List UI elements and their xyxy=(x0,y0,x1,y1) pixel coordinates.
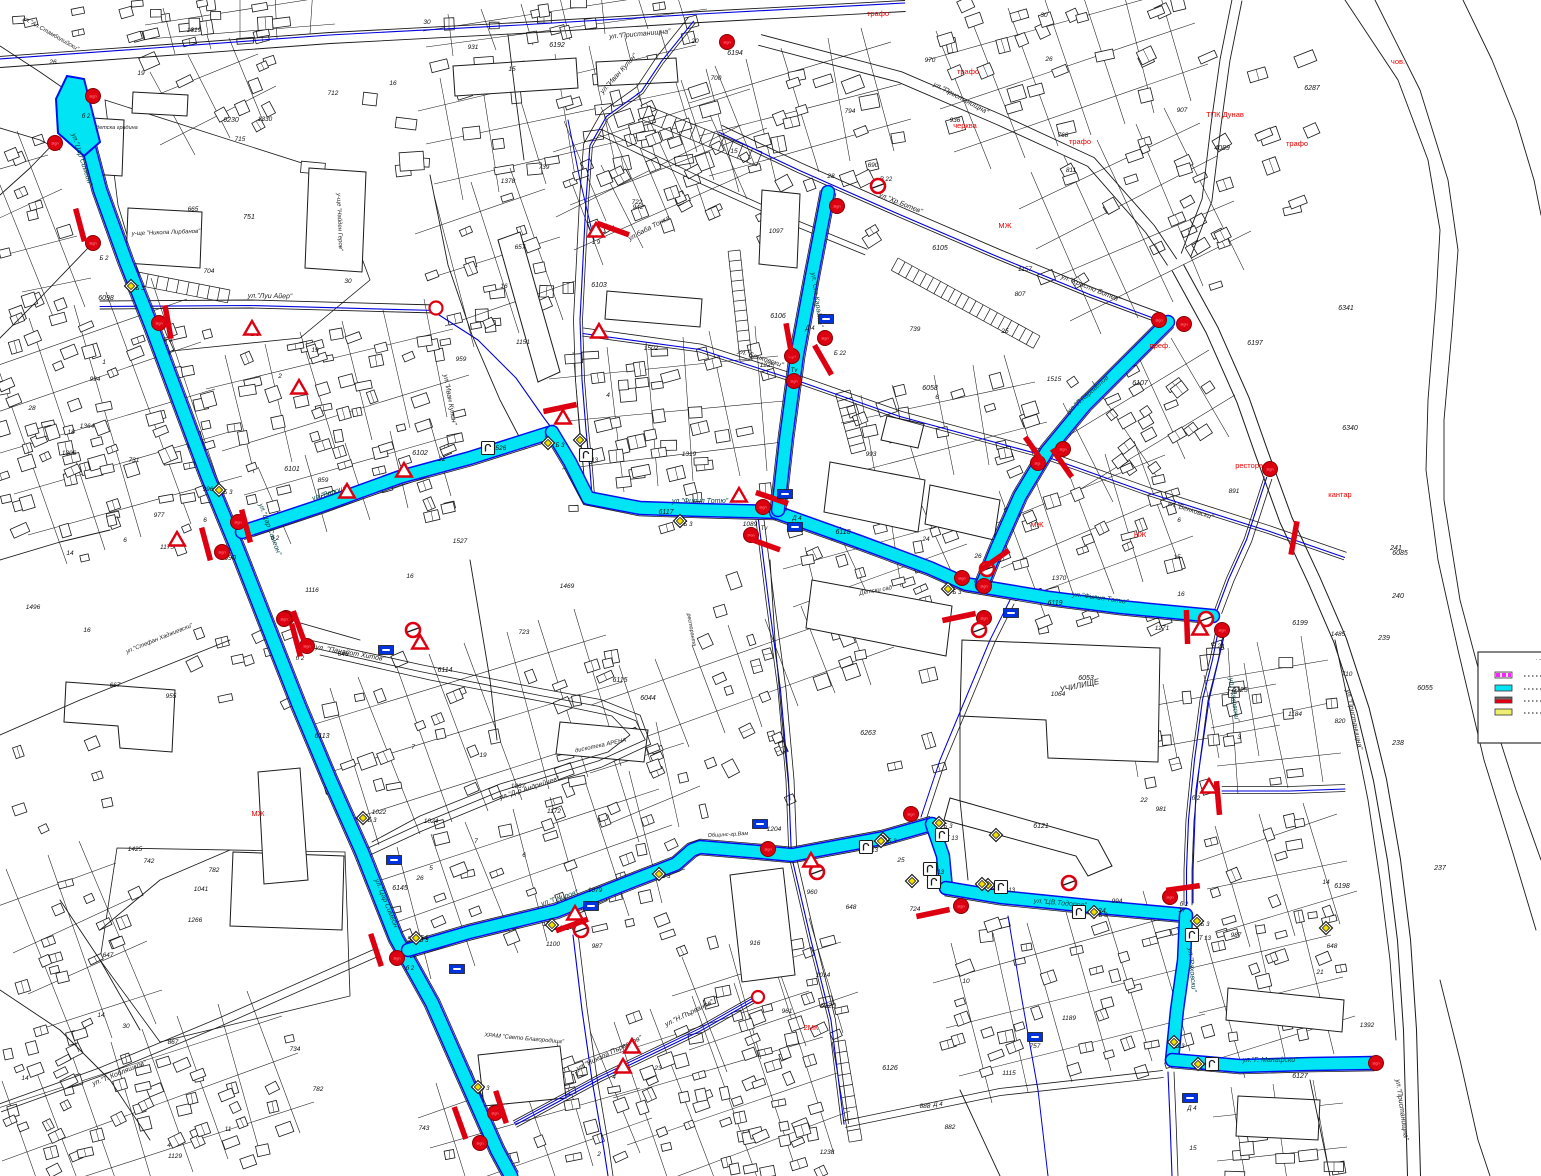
svg-text:648: 648 xyxy=(1327,943,1338,950)
svg-text:6: 6 xyxy=(935,394,939,401)
svg-text:6118: 6118 xyxy=(835,529,850,536)
svg-text:ул.”Луи Айер”: ул.”Луи Айер” xyxy=(247,292,293,301)
svg-text:751: 751 xyxy=(243,214,255,221)
svg-text:6119: 6119 xyxy=(1047,600,1062,607)
svg-text:648: 648 xyxy=(846,904,857,911)
svg-text:Д 4: Д 4 xyxy=(1186,1106,1197,1112)
svg-text:16: 16 xyxy=(500,283,508,290)
svg-text:891: 891 xyxy=(1229,488,1240,495)
svg-text:sign: sign xyxy=(1180,322,1187,327)
svg-text:820: 820 xyxy=(1335,718,1346,725)
svg-text:sign: sign xyxy=(821,336,828,341)
svg-text:723: 723 xyxy=(519,629,530,636)
svg-text:7: 7 xyxy=(474,838,478,845)
svg-text:Б 3: Б 3 xyxy=(556,443,566,449)
svg-text:1392: 1392 xyxy=(1360,1022,1375,1029)
svg-text:кантар: кантар xyxy=(1328,490,1351,499)
svg-text:768: 768 xyxy=(1058,132,1069,139)
svg-text:15: 15 xyxy=(508,66,516,73)
svg-text:sign: sign xyxy=(980,616,987,621)
svg-text:888: 888 xyxy=(920,1103,931,1110)
svg-text:647: 647 xyxy=(103,952,114,959)
svg-text:15: 15 xyxy=(1189,1145,1197,1152)
svg-text:6198: 6198 xyxy=(1334,883,1350,890)
svg-text:трафо: трафо xyxy=(1286,139,1308,148)
svg-text:6197: 6197 xyxy=(1247,340,1264,347)
svg-text:739: 739 xyxy=(539,164,550,171)
svg-text:6044: 6044 xyxy=(640,695,656,702)
svg-text:6126: 6126 xyxy=(882,1065,898,1072)
svg-text:724: 724 xyxy=(910,906,921,913)
svg-text:sign: sign xyxy=(155,321,162,326)
svg-text:6145: 6145 xyxy=(392,885,408,892)
svg-text:МЖ: МЖ xyxy=(1030,520,1043,529)
svg-text:1225: 1225 xyxy=(760,362,775,369)
svg-text:Б 2: Б 2 xyxy=(100,256,110,262)
svg-text:1116: 1116 xyxy=(305,587,319,594)
svg-text:б 2: б 2 xyxy=(271,536,280,542)
svg-text:1370: 1370 xyxy=(1052,575,1067,582)
svg-text:sign: sign xyxy=(1372,1061,1379,1066)
svg-text:sign: sign xyxy=(89,241,96,246)
svg-text:239: 239 xyxy=(1377,635,1390,642)
svg-text:20: 20 xyxy=(690,38,699,45)
svg-text:6: 6 xyxy=(1177,517,1181,524)
svg-text:1129: 1129 xyxy=(168,1153,182,1160)
svg-text:преф.: преф. xyxy=(1150,341,1171,350)
svg-text:1189: 1189 xyxy=(1062,1015,1076,1022)
svg-text:трафо: трафо xyxy=(957,67,979,76)
svg-text:детска градина: детска градина xyxy=(96,125,138,131)
svg-text:3: 3 xyxy=(1237,734,1241,741)
svg-text:994: 994 xyxy=(90,376,101,383)
svg-text:4: 4 xyxy=(606,392,610,399)
svg-text:1041: 1041 xyxy=(194,886,209,893)
svg-text:704: 704 xyxy=(204,268,215,275)
svg-text:6102: 6102 xyxy=(412,450,428,457)
svg-text:sign: sign xyxy=(218,550,225,555)
svg-text:черква: черква xyxy=(953,121,977,130)
svg-text:sign: sign xyxy=(1166,895,1173,900)
svg-text:Б 22: Б 22 xyxy=(834,351,847,357)
svg-text:1 9: 1 9 xyxy=(592,240,601,246)
svg-text:sign: sign xyxy=(764,847,771,852)
svg-text:6115: 6115 xyxy=(612,677,627,684)
svg-text:1204: 1204 xyxy=(767,826,782,833)
svg-text:867: 867 xyxy=(168,1039,179,1046)
svg-text:742: 742 xyxy=(144,858,155,865)
svg-text:1089: 1089 xyxy=(743,521,758,528)
svg-text:Б 3: Б 3 xyxy=(953,590,963,596)
svg-text:sign: sign xyxy=(1266,467,1273,472)
svg-text:sign: sign xyxy=(958,576,965,581)
svg-text:19: 19 xyxy=(137,70,145,77)
svg-text:5: 5 xyxy=(429,865,433,872)
svg-text:15: 15 xyxy=(1173,554,1181,561)
svg-text:240: 240 xyxy=(1391,593,1404,600)
svg-text:30: 30 xyxy=(344,278,352,285)
svg-text:712: 712 xyxy=(328,90,339,97)
svg-text:6127: 6127 xyxy=(1292,1073,1309,1080)
svg-text:1097: 1097 xyxy=(769,228,784,235)
svg-text:710: 710 xyxy=(1342,671,1353,678)
svg-text:26: 26 xyxy=(973,553,982,560)
svg-text:14: 14 xyxy=(21,1075,29,1082)
svg-text:16: 16 xyxy=(1177,591,1185,598)
svg-text:28: 28 xyxy=(826,173,835,180)
svg-text:1330: 1330 xyxy=(258,116,273,123)
svg-text:1067: 1067 xyxy=(511,783,526,790)
svg-text:НЖ: НЖ xyxy=(1134,530,1146,539)
svg-text:sign: sign xyxy=(476,1141,483,1146)
svg-text:1364: 1364 xyxy=(80,423,95,430)
svg-text:16: 16 xyxy=(389,80,397,87)
svg-text:782: 782 xyxy=(209,867,220,874)
svg-text:743: 743 xyxy=(419,1125,430,1132)
svg-text:981: 981 xyxy=(1156,806,1167,813)
svg-text:б 2: б 2 xyxy=(1180,902,1189,908)
svg-text:715: 715 xyxy=(235,136,246,143)
svg-text:6105: 6105 xyxy=(932,245,948,252)
svg-text:б 2: б 2 xyxy=(1192,796,1201,802)
svg-text:sign: sign xyxy=(1218,628,1225,633)
svg-text:. ..: . .. xyxy=(1536,656,1541,662)
svg-text:чов.: чов. xyxy=(1391,57,1405,66)
svg-text:757: 757 xyxy=(1030,1043,1041,1050)
svg-text:10: 10 xyxy=(962,978,970,985)
svg-text:6: 6 xyxy=(522,852,526,859)
svg-text:6058: 6058 xyxy=(922,385,938,392)
svg-text:6263: 6263 xyxy=(860,730,876,737)
svg-text:sign: sign xyxy=(907,812,914,817)
svg-text:1469: 1469 xyxy=(560,583,575,590)
svg-text:959: 959 xyxy=(456,356,467,363)
svg-text:811: 811 xyxy=(1066,167,1077,174)
svg-text:Д 4: Д 4 xyxy=(804,326,815,332)
svg-text:1: 1 xyxy=(102,359,106,366)
svg-text:25: 25 xyxy=(896,857,905,864)
svg-text:722: 722 xyxy=(632,199,643,206)
svg-text:1378: 1378 xyxy=(501,178,516,185)
svg-text:ул.”Г. Манафски”: ул.”Г. Манафски” xyxy=(1241,1057,1298,1064)
svg-text:1172: 1172 xyxy=(547,808,561,815)
svg-text:6055: 6055 xyxy=(1417,685,1433,692)
svg-text:1157: 1157 xyxy=(1018,266,1032,273)
svg-text:Д 4: Д 4 xyxy=(932,1102,943,1108)
svg-text:23: 23 xyxy=(653,1065,662,1072)
svg-text:1184: 1184 xyxy=(1288,711,1302,718)
svg-text:1496: 1496 xyxy=(26,604,41,611)
svg-text:6199: 6199 xyxy=(1292,620,1308,627)
svg-text:30: 30 xyxy=(423,19,431,26)
svg-text:716: 716 xyxy=(1227,689,1238,696)
svg-text:30: 30 xyxy=(1040,12,1048,19)
svg-text:782: 782 xyxy=(313,1086,324,1093)
svg-text:1485: 1485 xyxy=(1331,631,1346,638)
svg-text:807: 807 xyxy=(1015,291,1026,298)
svg-text:1151: 1151 xyxy=(516,339,530,346)
svg-text:4: 4 xyxy=(167,1142,171,1149)
svg-text:sign: sign xyxy=(51,141,58,146)
svg-text:22: 22 xyxy=(1139,797,1148,804)
svg-text:ул.”Филип Тотю”: ул.”Филип Тотю” xyxy=(671,498,729,505)
svg-text:14: 14 xyxy=(97,1012,105,1019)
svg-text:960: 960 xyxy=(807,889,818,896)
svg-text:961: 961 xyxy=(782,1008,793,1015)
svg-text:1266: 1266 xyxy=(188,917,203,924)
svg-text:Т 13: Т 13 xyxy=(1199,936,1212,942)
svg-text:665: 665 xyxy=(188,206,199,213)
svg-text:6287: 6287 xyxy=(1304,85,1321,92)
svg-text:6120: 6120 xyxy=(820,1003,836,1010)
svg-text:1024: 1024 xyxy=(424,818,439,825)
svg-text:970: 970 xyxy=(925,57,936,64)
svg-text:16: 16 xyxy=(406,573,414,580)
svg-text:Б 22: Б 22 xyxy=(1212,644,1225,650)
svg-text:6106: 6106 xyxy=(770,313,786,320)
svg-text:931: 931 xyxy=(468,44,479,51)
svg-text:916: 916 xyxy=(750,940,761,947)
svg-text:6107: 6107 xyxy=(1132,380,1149,387)
svg-text:907: 907 xyxy=(1177,107,1188,114)
svg-text:б 2: б 2 xyxy=(296,656,305,662)
svg-text:1515: 1515 xyxy=(1047,376,1062,383)
svg-text:ТПК Дунав: ТПК Дунав xyxy=(1206,110,1244,119)
svg-text:794: 794 xyxy=(845,108,856,115)
svg-text:996: 996 xyxy=(203,486,214,493)
svg-text:657: 657 xyxy=(515,244,526,251)
svg-text:6114: 6114 xyxy=(437,667,452,674)
svg-text:6113: 6113 xyxy=(314,733,329,740)
svg-text:21: 21 xyxy=(1315,969,1324,976)
svg-text:26: 26 xyxy=(1044,56,1053,63)
svg-text:sign: sign xyxy=(393,956,400,961)
svg-text:731: 731 xyxy=(129,457,140,464)
svg-text:1022: 1022 xyxy=(372,809,387,816)
svg-text:б 2: б 2 xyxy=(406,966,415,972)
svg-text:28: 28 xyxy=(27,405,36,412)
svg-text:6101: 6101 xyxy=(284,466,300,473)
svg-text:690: 690 xyxy=(868,162,879,169)
svg-text:6103: 6103 xyxy=(591,282,607,289)
svg-text:646: 646 xyxy=(338,651,349,658)
svg-text:1319: 1319 xyxy=(682,451,697,458)
svg-text:16: 16 xyxy=(83,627,91,634)
svg-text:739: 739 xyxy=(910,326,921,333)
svg-text:б 2: б 2 xyxy=(82,114,91,120)
svg-text:1425: 1425 xyxy=(128,846,143,853)
svg-text:15: 15 xyxy=(730,148,738,155)
svg-text:25: 25 xyxy=(1000,328,1009,335)
svg-text:700: 700 xyxy=(711,75,722,82)
svg-text:2МК: 2МК xyxy=(804,1023,819,1032)
svg-text:Д 4: Д 4 xyxy=(791,516,802,522)
svg-text:4089: 4089 xyxy=(1214,145,1230,152)
svg-text:14: 14 xyxy=(66,550,74,557)
svg-text:2: 2 xyxy=(596,1151,601,1158)
svg-text:1319: 1319 xyxy=(187,27,202,34)
svg-text:sign: sign xyxy=(1155,318,1162,323)
svg-text:sign: sign xyxy=(89,94,96,99)
svg-text:sign: sign xyxy=(980,584,987,589)
svg-text:sign: sign xyxy=(280,617,287,622)
svg-text:1502: 1502 xyxy=(644,345,659,352)
svg-text:sign: sign xyxy=(303,644,310,649)
svg-text:1014: 1014 xyxy=(816,972,831,979)
svg-text:30: 30 xyxy=(122,1023,130,1030)
svg-text:882: 882 xyxy=(945,1124,956,1131)
svg-text:19: 19 xyxy=(479,752,487,759)
svg-text:237: 237 xyxy=(1433,865,1447,872)
svg-text:6: 6 xyxy=(203,517,207,524)
svg-text:1079: 1079 xyxy=(588,887,603,894)
svg-text:24: 24 xyxy=(921,536,930,543)
svg-text:1238: 1238 xyxy=(820,1149,835,1156)
svg-text:sign: sign xyxy=(1059,447,1066,452)
svg-text:6192: 6192 xyxy=(549,42,565,49)
svg-text:6: 6 xyxy=(123,537,127,544)
svg-text:238: 238 xyxy=(1391,740,1404,747)
svg-text:6230: 6230 xyxy=(223,117,239,124)
svg-text:МЖ: МЖ xyxy=(998,221,1011,230)
svg-text:993: 993 xyxy=(866,451,877,458)
svg-text:sign: sign xyxy=(234,520,241,525)
svg-text:6340: 6340 xyxy=(1342,425,1358,432)
svg-text:17: 17 xyxy=(1178,907,1186,914)
svg-text:241: 241 xyxy=(1389,545,1402,552)
svg-text:Тv: Тv xyxy=(761,526,769,532)
svg-text:955: 955 xyxy=(166,693,177,700)
svg-text:6194: 6194 xyxy=(727,50,743,57)
svg-text:14: 14 xyxy=(1322,879,1330,886)
svg-text:1527: 1527 xyxy=(453,538,468,545)
svg-text:19: 19 xyxy=(311,347,319,354)
svg-text:994: 994 xyxy=(1112,898,1123,905)
svg-text:sign: sign xyxy=(790,379,797,384)
svg-text:987: 987 xyxy=(1231,932,1242,939)
svg-text:трафо: трафо xyxy=(1069,137,1091,146)
svg-text:977: 977 xyxy=(154,512,165,519)
svg-text:4: 4 xyxy=(612,1074,616,1081)
svg-text:6121: 6121 xyxy=(1033,823,1049,830)
svg-text:sign: sign xyxy=(833,204,840,209)
svg-text:859: 859 xyxy=(318,477,329,484)
svg-text:11: 11 xyxy=(225,1126,232,1133)
svg-text:МЖ: МЖ xyxy=(251,809,264,818)
svg-text:1306: 1306 xyxy=(62,450,77,457)
svg-text:18: 18 xyxy=(67,429,75,436)
svg-text:1115: 1115 xyxy=(1002,1070,1016,1077)
svg-text:667: 667 xyxy=(110,682,121,689)
svg-text:26: 26 xyxy=(48,59,57,66)
svg-text:6117: 6117 xyxy=(658,509,674,516)
svg-text:2: 2 xyxy=(277,373,282,380)
svg-text:734: 734 xyxy=(290,1046,301,1053)
svg-text:1100: 1100 xyxy=(546,941,560,948)
svg-text:sign: sign xyxy=(491,1111,498,1116)
svg-text:22: 22 xyxy=(437,456,446,463)
svg-text:1271: 1271 xyxy=(1155,625,1170,632)
svg-text:sign: sign xyxy=(723,40,730,45)
svg-text:трафо: трафо xyxy=(867,9,889,18)
svg-text:sign: sign xyxy=(957,904,964,909)
svg-text:7: 7 xyxy=(411,744,415,751)
svg-text:sign: sign xyxy=(759,505,766,510)
svg-text:Б 3: Б 3 xyxy=(1099,913,1109,919)
svg-text:6341: 6341 xyxy=(1338,305,1354,312)
svg-text:6098: 6098 xyxy=(98,295,114,302)
svg-text:26: 26 xyxy=(415,875,424,882)
svg-text:987: 987 xyxy=(592,943,603,950)
